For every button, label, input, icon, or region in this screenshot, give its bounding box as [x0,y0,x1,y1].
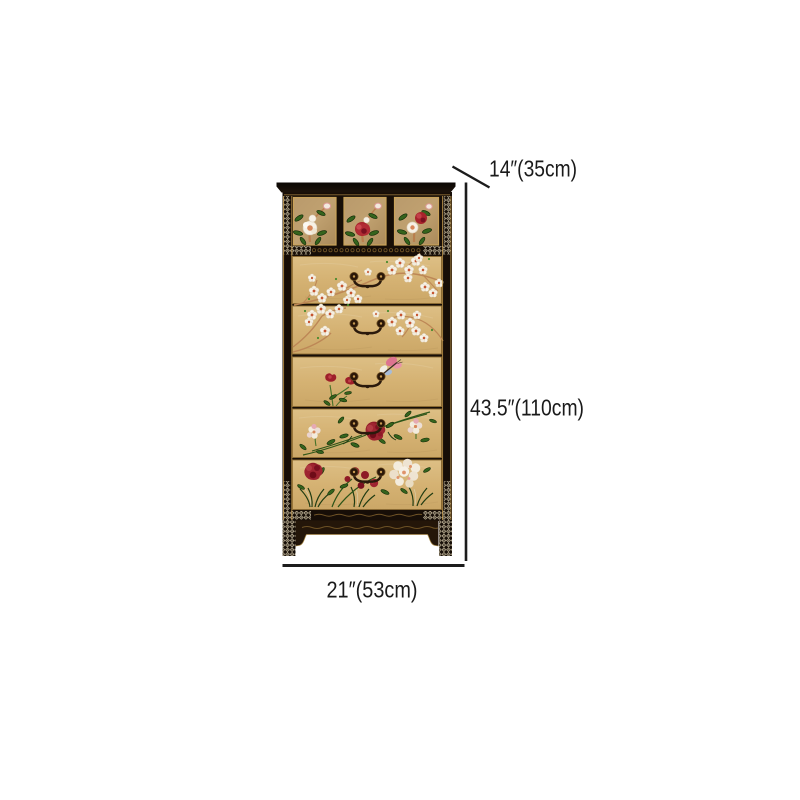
svg-text:43.5″(110cm): 43.5″(110cm) [470,395,584,421]
svg-text:14″(35cm): 14″(35cm) [489,156,577,182]
svg-text:21″(53cm): 21″(53cm) [327,577,418,603]
